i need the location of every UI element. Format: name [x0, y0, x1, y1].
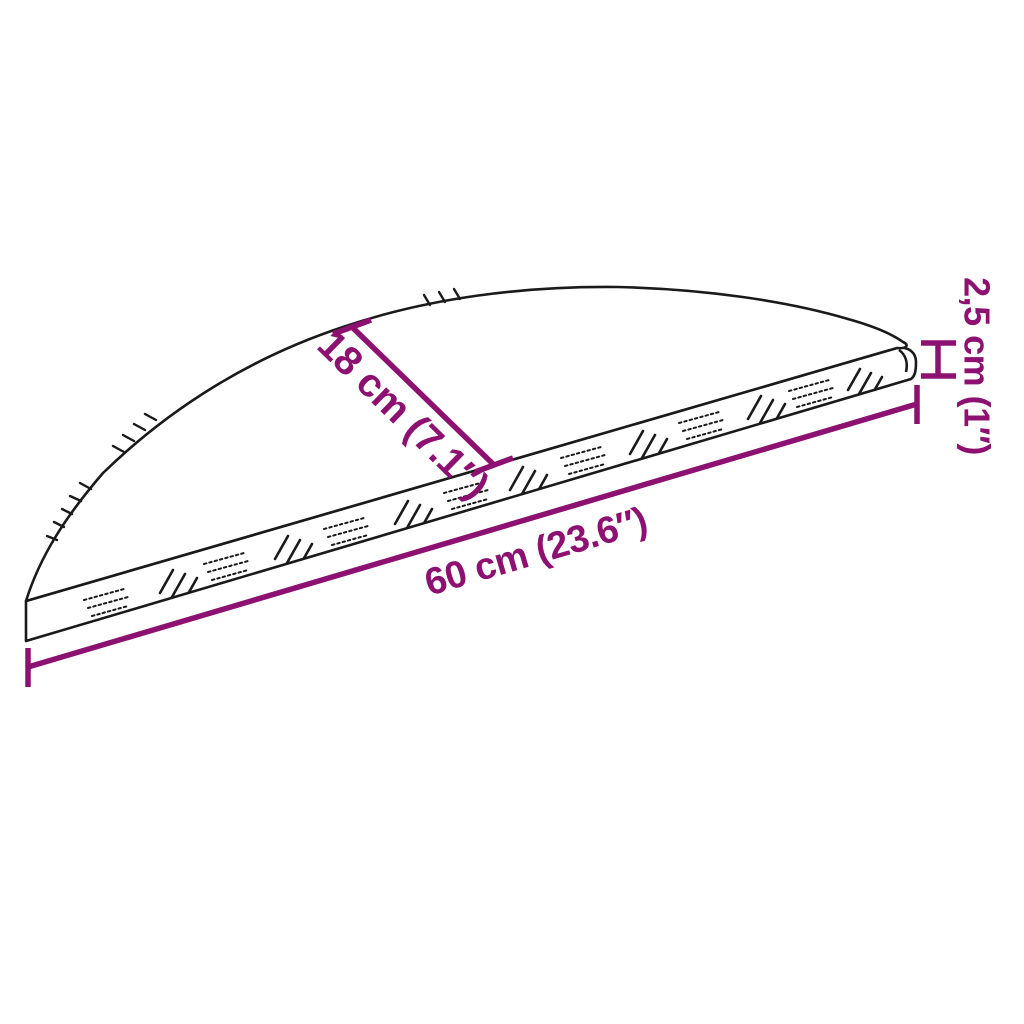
thickness-dimension-label: 2,5 cm (1″)	[957, 277, 998, 455]
stair-tread-diagram-canvas: 18 cm (7.1″) 60 cm (23.6″) 2,5 cm (1″)	[0, 0, 1024, 1024]
product-dimension-diagram: 18 cm (7.1″) 60 cm (23.6″) 2,5 cm (1″)	[0, 0, 1024, 1024]
thickness-dimension: 2,5 cm (1″)	[921, 277, 998, 455]
